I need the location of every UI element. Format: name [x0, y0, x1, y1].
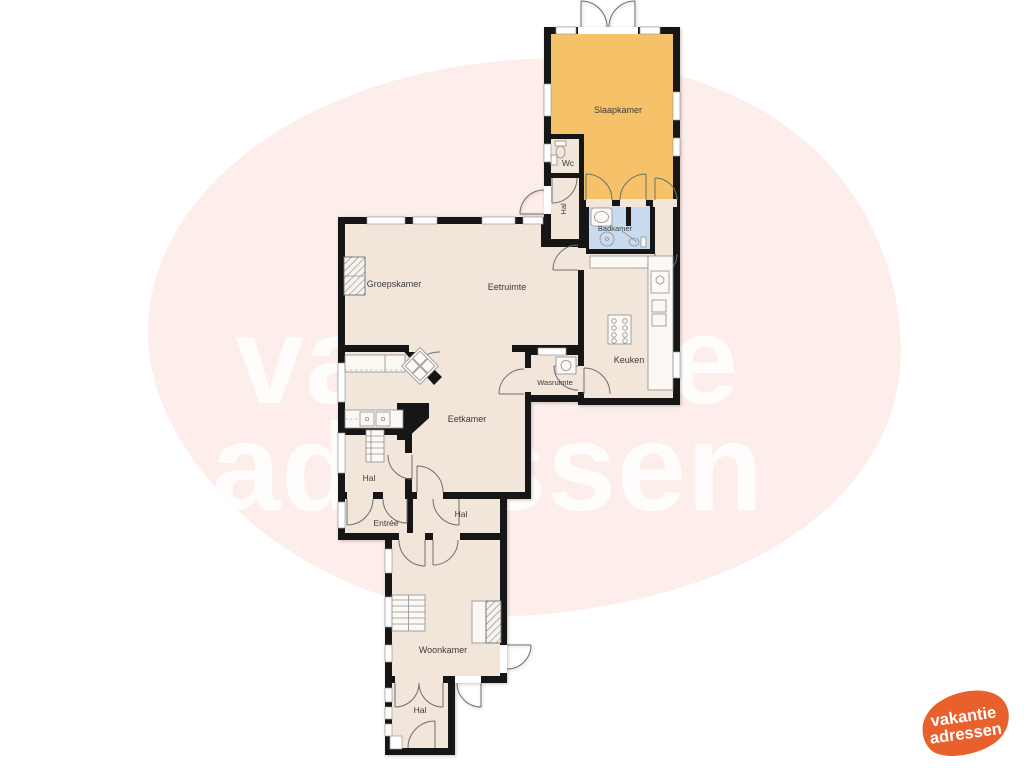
label-woonkamer: Woonkamer [419, 645, 467, 655]
label-hal-midden: Hal [455, 509, 468, 519]
label-entree: Entrée [373, 518, 398, 528]
floorplan-page: vakantie adressen [0, 0, 1024, 768]
label-wc: Wc [562, 158, 575, 168]
sink-counter [345, 410, 403, 428]
label-keuken: Keuken [614, 355, 645, 365]
label-slaapkamer: Slaapkamer [594, 105, 642, 115]
stairs-icon [392, 595, 425, 631]
label-hal-tussen: Hal [363, 473, 376, 483]
label-eetkamer: Eetkamer [448, 414, 487, 424]
room-kast-hal [655, 206, 673, 249]
french-doors [581, 1, 635, 27]
label-wasruimte: Wasruimte [537, 378, 573, 387]
small-door [390, 736, 402, 749]
stove-icon [608, 315, 631, 344]
ladder-cabinet [366, 430, 384, 462]
site-logo: vakantie adressen [916, 684, 1012, 762]
counter-top [345, 355, 405, 372]
fireplace-icon [472, 601, 501, 643]
washer-icon [556, 357, 576, 374]
label-hal-beneden: Hal [414, 705, 427, 715]
label-groepskamer: Groepskamer [367, 279, 422, 289]
small-sink-icon [551, 155, 557, 165]
fireplace-hatch [344, 257, 365, 295]
floors [345, 34, 673, 748]
label-badkamer: Badkamer [598, 224, 633, 233]
label-eetruimte: Eetruimte [488, 282, 527, 292]
label-hal-boven: Hal [559, 203, 568, 215]
floor-plan: Slaapkamer Wc Hal Badkamer Keuken Groeps… [0, 0, 1024, 768]
